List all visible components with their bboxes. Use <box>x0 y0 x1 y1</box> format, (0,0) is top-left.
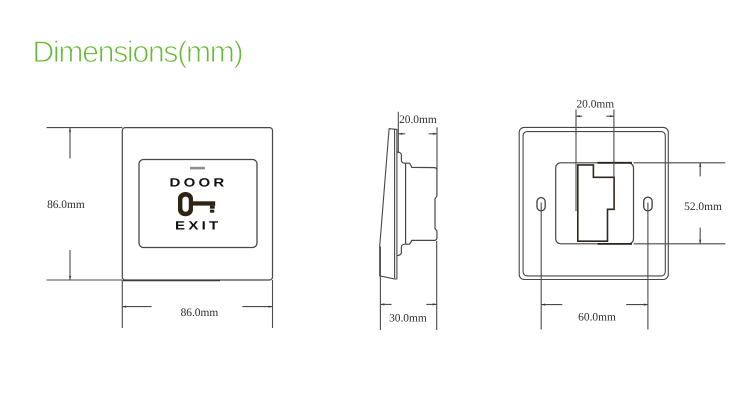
svg-text:Dimensions(mm): Dimensions(mm) <box>33 36 243 69</box>
svg-text:52.0mm: 52.0mm <box>684 201 722 213</box>
svg-text:60.0mm: 60.0mm <box>578 312 616 324</box>
svg-text:30.0mm: 30.0mm <box>389 313 427 325</box>
svg-text:20.0mm: 20.0mm <box>399 114 437 126</box>
svg-text:DOOR: DOOR <box>169 176 227 190</box>
svg-text:20.0mm: 20.0mm <box>576 98 614 110</box>
svg-text:EXIT: EXIT <box>175 219 221 233</box>
svg-text:86.0mm: 86.0mm <box>181 307 219 319</box>
svg-text:86.0mm: 86.0mm <box>47 199 85 211</box>
